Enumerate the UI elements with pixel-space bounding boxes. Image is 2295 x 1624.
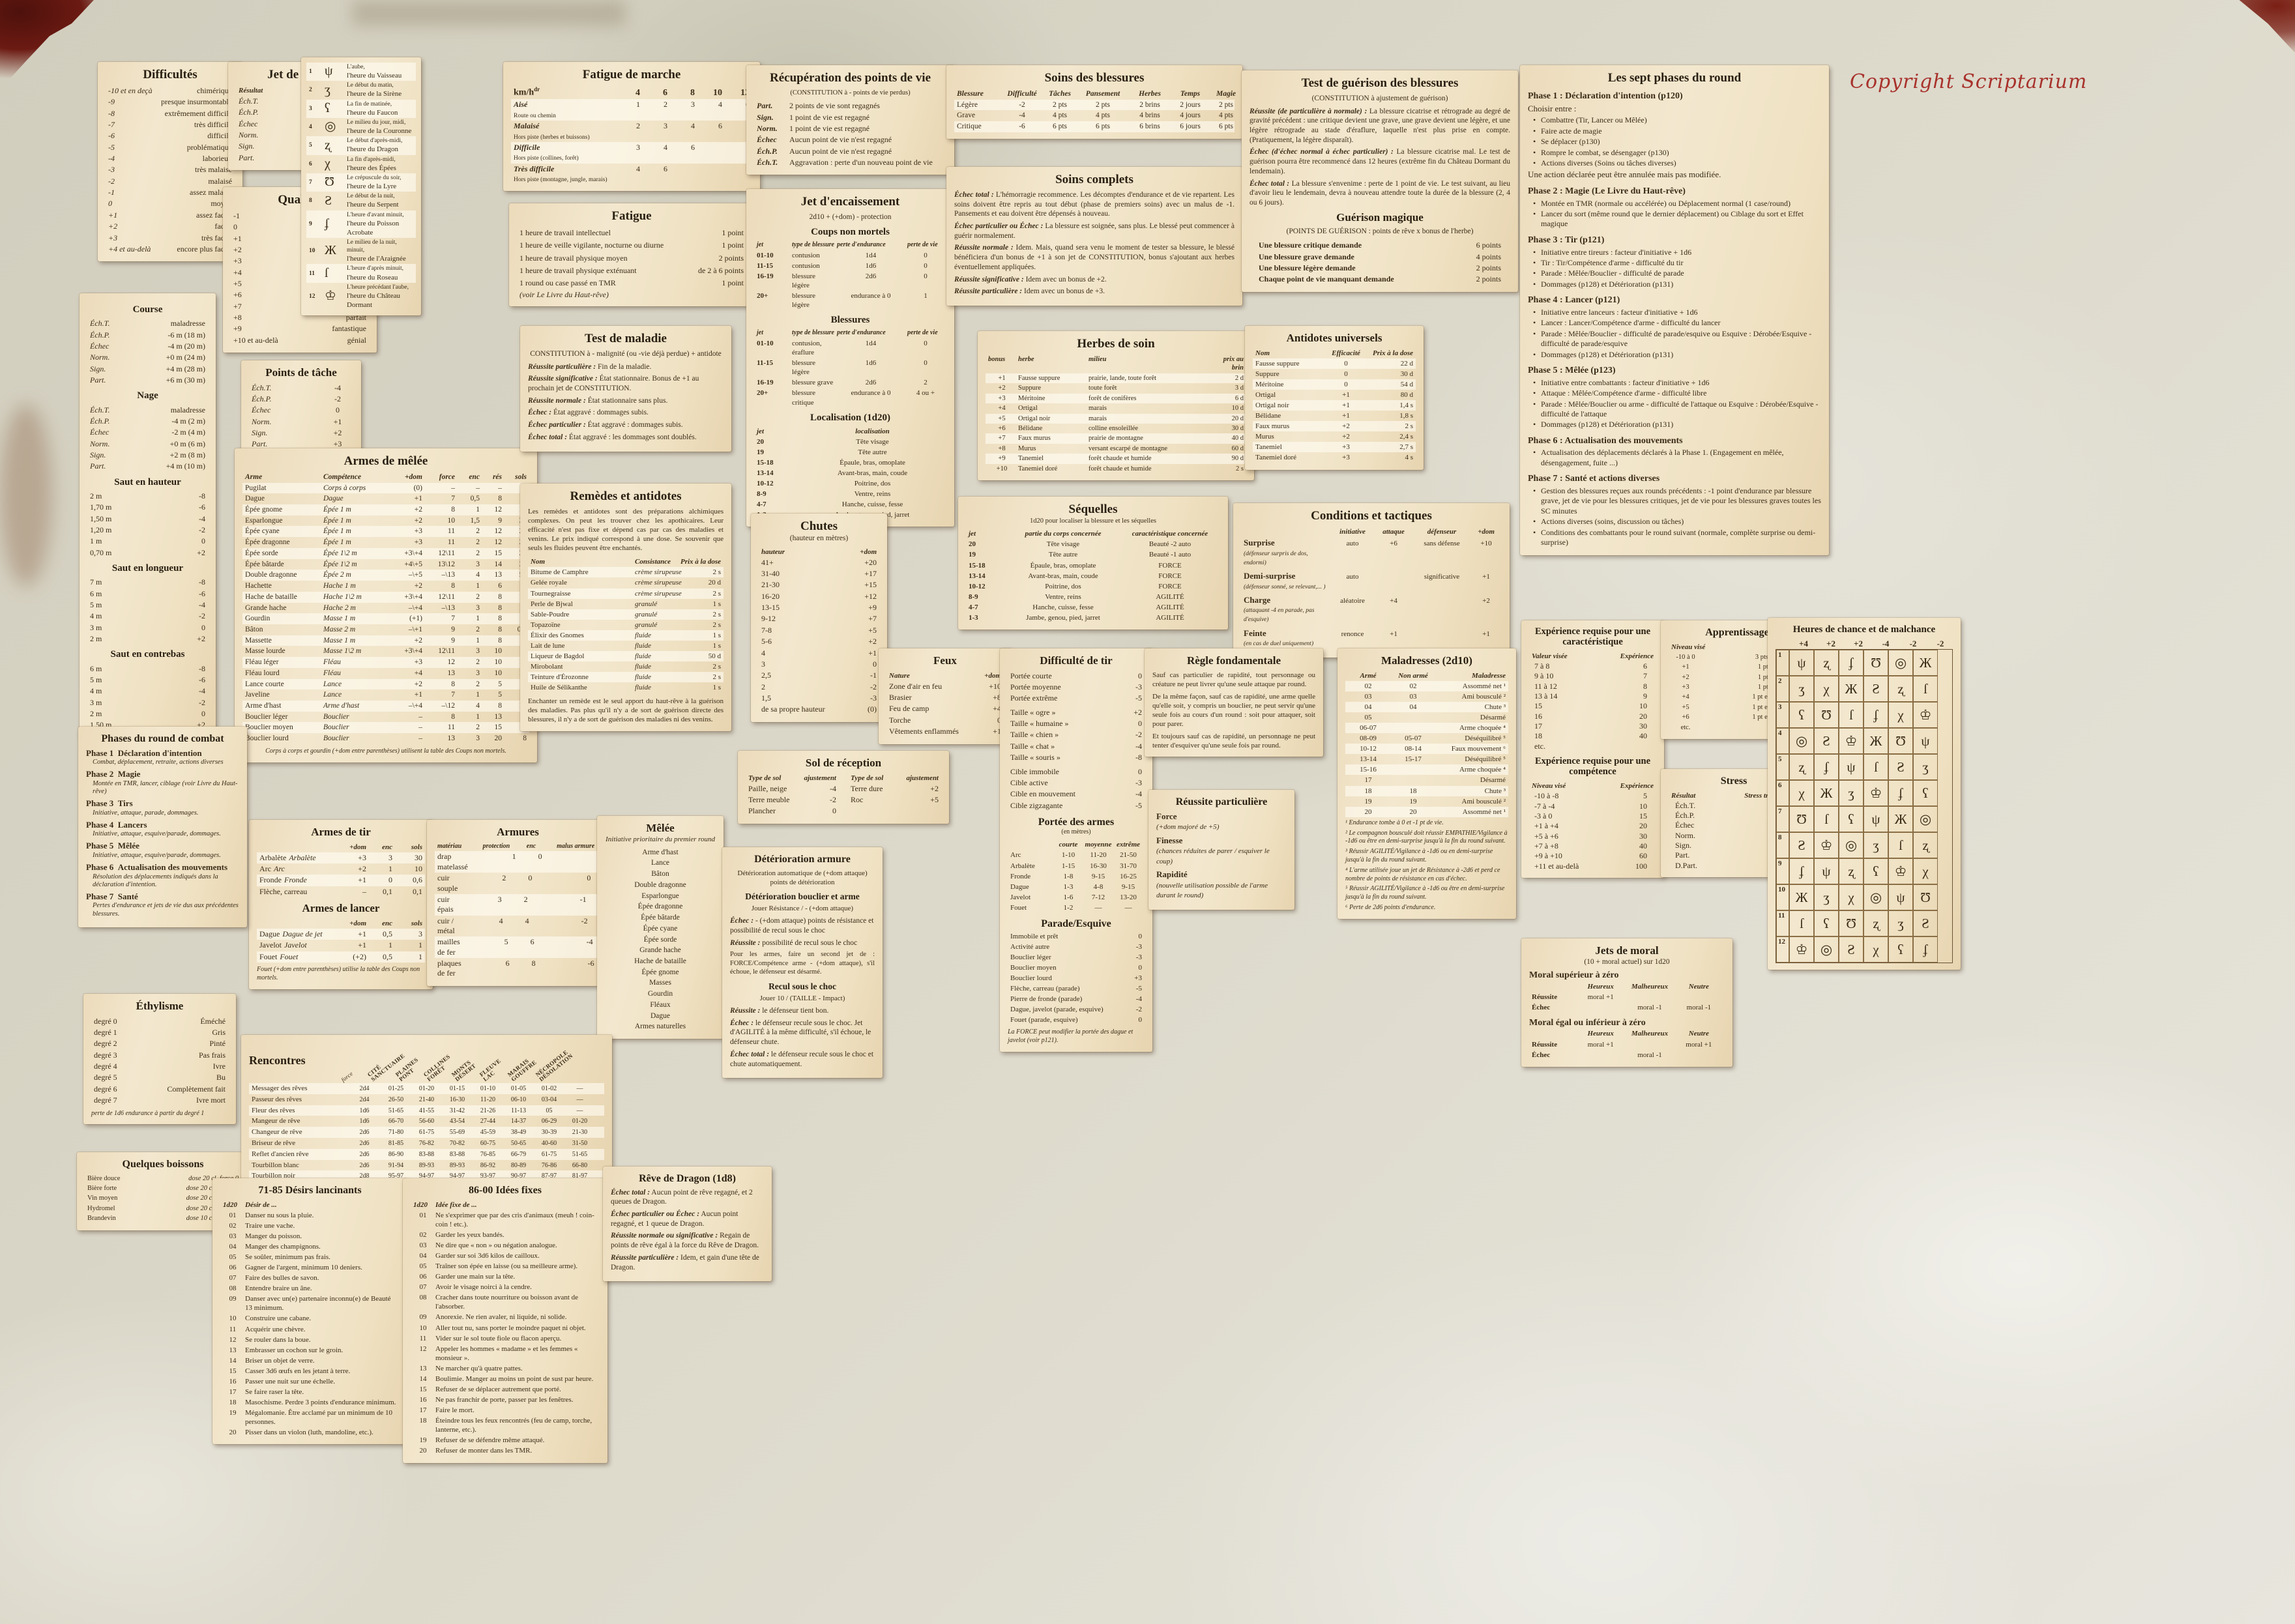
col-header: jet — [757, 427, 798, 436]
hour-sigil-icon: Ж — [325, 242, 344, 259]
weapon-dom: (0) — [388, 484, 422, 493]
initiative-order-list: Arme d'hastLanceBâtonDouble dragonneEspa… — [605, 847, 716, 1032]
card-desirs: 71-85 Désirs lancinants 1d20 Désir de ..… — [212, 1178, 407, 1444]
row-key: Norm. — [90, 439, 110, 449]
weapon-row: Grande hache Hache 2 m –\+4 –\13 3 8 15 — [242, 603, 529, 614]
remedy-price: 1 s — [697, 631, 721, 640]
col-header: localisation — [801, 427, 944, 436]
armor-malus: -6 — [538, 959, 594, 968]
armor-material: cuir épais — [437, 895, 454, 915]
card-subtitle: (CONSTITUTION à ajustement de guérison) — [1250, 94, 1510, 104]
result-label: Réussite particulière : — [611, 1254, 679, 1262]
row-key: -9 — [108, 97, 115, 107]
row-value: 0 — [201, 709, 205, 719]
range-monts: 45-59 — [474, 1129, 502, 1137]
defender: significative — [1413, 572, 1470, 581]
fumble-row: 10-12 08-14 Faux mouvement ⁶ — [1345, 744, 1508, 754]
fatigue-value: 1 — [615, 100, 640, 109]
weapon-skill: Fléau — [323, 669, 386, 678]
row-value: -5 — [1136, 984, 1142, 993]
endurance-loss: 1d4 — [837, 251, 905, 260]
table-row: Terre meuble-2 — [746, 794, 839, 805]
weapon-enc: 0,5 — [369, 929, 392, 939]
range-difficulty: Portée courte0Portée moyenne-3Portée ext… — [1008, 671, 1145, 704]
result-entry: Échec particulier ou Échec : La blessure… — [954, 222, 1235, 240]
hour-name: l'heure de la Sirène — [347, 90, 402, 98]
weapon-force: 9 — [425, 636, 455, 646]
card-title: Antidotes universels — [1253, 332, 1416, 345]
march-fatigue-table: AiséRoute ou chemin 1 2 3 4 6 MalaiséHor… — [511, 99, 752, 184]
weapon-name: Bouclier moyen — [245, 723, 321, 732]
section-title: Coups non mortels — [754, 226, 946, 239]
col-header: +dom — [1473, 527, 1499, 536]
body-part: Poitrine, dos — [801, 479, 944, 488]
fall-height: 21-30 — [761, 580, 780, 590]
antidote-price: 22 d — [1367, 359, 1413, 368]
armed-roll: 18 — [1348, 787, 1388, 796]
section-title: Parade/Esquive — [1008, 918, 1145, 930]
armor-enc: 8 — [512, 959, 536, 968]
table-row: 4-7 Hanche, cuisse, fesse — [754, 499, 946, 510]
phase-number: Phase 4 — [86, 820, 113, 830]
desire-text: Danser avec un(e) partenaire inconnu(e) … — [245, 1294, 397, 1312]
encounter-force: 2d6 — [349, 1151, 379, 1159]
card-title: Maladresses (2d10) — [1345, 655, 1508, 667]
obsession-text: Garder sur soi 3d6 kilos de cailloux. — [435, 1251, 597, 1260]
weapon-force: 13 — [425, 734, 455, 744]
armor-enc: 0 — [508, 873, 532, 883]
row-key: 1,20 m — [90, 525, 111, 535]
bullet-item: Initiative entre lanceurs : facteur d'in… — [1533, 308, 1821, 317]
herb-name: Suppure — [1018, 384, 1086, 392]
desire-text: Masochisme. Perdre 3 points d'endurance … — [245, 1398, 397, 1407]
hour-sigil-icon: ♔ — [325, 288, 344, 305]
terrain-row: AiséRoute ou chemin 1 2 3 4 6 — [511, 99, 752, 121]
hour-sigil-icon: ʐ — [1839, 858, 1864, 884]
result-label: Échec : — [730, 917, 753, 925]
section-title: Expérience requise pour une compétence — [1529, 757, 1656, 777]
col-header: Armé — [1348, 671, 1388, 680]
col-header: Idée fixe de ... — [435, 1200, 597, 1210]
footnote: ³ Réussir AGILITÉ/Vigilance à -1d6 ou en… — [1345, 848, 1508, 865]
table-row: Plancher0 — [746, 805, 839, 817]
phase-bullets: Montée en TMR (normale ou accélérée) ou … — [1533, 199, 1821, 229]
col-header: force — [425, 472, 455, 482]
table-header: Heureux Malheureux Neutre — [1529, 981, 1725, 992]
table-row: Une blessure critique demande6 points — [1250, 240, 1510, 251]
phase-line: Phase 3 Tirs — [86, 798, 239, 809]
weapon-enc: 2 — [458, 658, 480, 667]
row-value: +0 m (6 m) — [170, 439, 205, 449]
remedy-row: Perle de Bjwal granulé 1 s — [528, 599, 724, 609]
bullet-item: Lancer : Lancer/Compétence d'arme - diff… — [1533, 318, 1821, 328]
herb-row: +9 Tanemiel forêt chaude et humide 90 d — [986, 454, 1246, 463]
weapon-enc: 3 — [458, 669, 480, 678]
encounter-row: Changeur de rêve 2d6 71-80 61-75 55-69 4… — [249, 1127, 604, 1138]
result: Éch.T. — [1675, 801, 1695, 811]
herb-price: 20 d — [1211, 414, 1244, 423]
fumble-row: 08-09 05-07 Déséquilibré ⁵ — [1345, 733, 1508, 744]
antidote-efficacy: 0 — [1327, 370, 1365, 379]
weapon-dom: –\+4 — [388, 701, 422, 711]
remedy-consistency: granulé — [635, 610, 695, 619]
desire-text: Passer une nuit sur une échelle. — [245, 1377, 397, 1386]
desire-text: Briser un objet de verre. — [245, 1356, 397, 1365]
weapon-row: Esparlongue Épée 1 m +2 10 1,5 9 20 — [242, 515, 529, 527]
row-key: Pierre de fronde (parade) — [1010, 994, 1082, 1004]
encounter-name: Changeur de rêve — [252, 1127, 347, 1137]
row-key: Échec — [757, 135, 787, 145]
row-key: Taille « souris » — [1010, 753, 1060, 762]
weapon-dom: (+1) — [388, 614, 422, 624]
intro-text: Les remèdes et antidotes sont des prépar… — [528, 507, 724, 553]
range-marais: 76-86 — [535, 1162, 563, 1170]
weapon-name: Pugilat — [245, 484, 321, 493]
section-subtitle: (en mètres) — [1008, 828, 1145, 837]
xp-cost: 8 — [1643, 682, 1647, 691]
hour-sigil-icon: χ — [1839, 884, 1864, 910]
range-necropole: 31-50 — [566, 1140, 594, 1148]
table-row: Sign.+2 — [249, 428, 353, 439]
hour-name: l'heure du Faucon — [347, 109, 398, 117]
armed-roll: 20 — [1348, 807, 1388, 817]
target-value: 18 — [1534, 731, 1542, 741]
weapon-res: 8 — [482, 603, 502, 613]
table-row: 2,5-1 — [759, 670, 879, 681]
table-row: 19 Tête autre Beauté -1 auto — [966, 549, 1220, 560]
weapon-enc: 3 — [458, 603, 480, 613]
col-header: Maladresse — [1438, 671, 1506, 680]
phase-entry: Phase 7 Santé Pertes d'endurance et jets… — [86, 892, 239, 918]
weapon-skill: Masse 1 m — [323, 636, 386, 646]
herb-name: Tanemiel — [1018, 454, 1086, 463]
card-title: Sol de réception — [746, 757, 941, 770]
xp-cost: 9 — [1643, 691, 1647, 701]
hour-name: l'heure du Château Dormant — [347, 292, 400, 309]
desire-text: Mégalomanie. Être acclamé par un minimum… — [245, 1408, 397, 1427]
card-points-tache: Points de tâche Éch.T.-4Éch.P.-2Échec0No… — [241, 360, 361, 457]
range-monts: 76-85 — [474, 1151, 502, 1159]
fumble-row: 05 Désarmé — [1345, 712, 1508, 723]
rule-paragraph: De la même façon, sauf cas de rapidité, … — [1152, 692, 1315, 729]
row-key: Taille « ogre » — [1010, 708, 1055, 718]
footnote: ⁴ L'arme utilisée joue un jet de Résista… — [1345, 867, 1508, 884]
col-header: moyenne — [1085, 840, 1112, 849]
result-text: État stationnaire sans plus. — [588, 397, 668, 405]
herb-row: +1 Fausse suppure prairie, lande, toute … — [986, 373, 1246, 383]
phase-line: Phase 6 Actualisation des mouvements — [86, 862, 239, 873]
fall-dom: (0) — [868, 704, 877, 714]
fatigue-value: 6 — [697, 121, 722, 131]
table-row: 31-40+17 — [759, 568, 879, 579]
row-value: +2 — [197, 634, 205, 644]
fall-height: 16-20 — [761, 592, 780, 602]
card-title: Points de tâche — [249, 367, 353, 379]
row-key: Cible en mouvement — [1010, 789, 1075, 799]
ground-type: Roc — [851, 795, 863, 805]
success-entry: Finesse(chances réduites de parer / esqu… — [1156, 835, 1287, 866]
phase-desc: Initiative, attaque, parade, dommages. — [93, 809, 239, 817]
thrown-weapons-table: Dague Dague de jet +1 0,5 3 Javelot Jave… — [257, 929, 425, 963]
obsession-text: Garder les yeux bandés. — [435, 1230, 597, 1240]
card-title: Armes de mêlée — [242, 455, 529, 469]
bullet-item: Rompre le combat, se désengager (p130) — [1533, 148, 1821, 158]
phase-number: Phase 7 — [86, 892, 113, 901]
section-subtitle: Jouer Résistance / - (+dom attaque) — [730, 904, 875, 913]
hour-sigil-icon: ʕ — [1839, 806, 1864, 832]
state: Ivre — [213, 1062, 226, 1071]
body-part: Poitrine, dos — [1006, 582, 1120, 591]
weapon-enc: 1 — [458, 712, 480, 722]
range-extreme: 13-20 — [1115, 893, 1142, 902]
degree: degré 5 — [94, 1073, 117, 1082]
phase-heading: Phase 5 : Mêlée (p123) — [1528, 365, 1821, 377]
hour-sigil-icon: Ƨ — [1888, 754, 1913, 780]
phase-number: Phase 1 — [86, 748, 113, 758]
weapon-row: Arc Arc +2 1 10 — [257, 863, 425, 875]
herb-bonus: +5 — [988, 414, 1016, 423]
table-row: 13-15+9 — [759, 602, 879, 613]
weapon-name: Dague — [1010, 882, 1052, 892]
row-key: Éch.T. — [90, 405, 110, 415]
result-label: Réussite normale : — [954, 244, 1014, 252]
roll: 19 — [223, 1408, 242, 1417]
phase-desc: Pertes d'endurance et jets de vie dus au… — [93, 902, 239, 918]
table-row: Part.+6 m (30 m) — [87, 375, 208, 386]
hour-row: 5 ʐ Le début d'après-midi,l'heure du Dra… — [306, 136, 416, 154]
table-row: -10 à -85 — [1529, 791, 1656, 801]
encounter-name: Mangeur de rêve — [252, 1116, 347, 1125]
terrain-desc: Hors piste (herbes et buissons) — [514, 134, 590, 141]
hour-label: La fin d'après-midi,l'heure des Épées — [347, 156, 413, 173]
remedy-consistency: granulé — [635, 600, 695, 609]
antidote-name: Fausse suppure — [1255, 359, 1324, 368]
obsession-text: Anorexie. Ne rien avaler, ni liquide, ni… — [435, 1312, 597, 1322]
healing-test-results: Réussite (de particulière à normale) : L… — [1250, 107, 1510, 208]
localisation-table: 20 Tête visage 19 Tête autre 15-18 Épaul… — [754, 437, 946, 521]
ground-adjust: -2 — [830, 795, 836, 805]
table-header: bonus herbe milieu prix au brin — [986, 355, 1246, 373]
hour-row: 10 Ж Le milieu de la nuit, minuit,l'heur… — [306, 238, 416, 264]
card-sol-reception: Sol de réception Type de solajustement P… — [738, 751, 949, 824]
table-row: 1 heure de veille vigilante, nocturne ou… — [517, 239, 746, 252]
target-level: +2 — [1671, 673, 1700, 682]
phase-line: Phase 7 Santé — [86, 892, 239, 903]
row-key: 0 — [108, 199, 112, 209]
list-item: Dague — [605, 1011, 716, 1022]
weapon-force: 7 — [425, 690, 455, 700]
tactic-label: Charge(attaquant -4 en parade, pas d'esq… — [1244, 595, 1328, 624]
antidote-efficacy: +1 — [1327, 411, 1365, 420]
hour-sigil-icon: ſ — [1839, 702, 1864, 728]
table-row: 05Traîner son épée en laisse (ou sa meil… — [411, 1261, 600, 1271]
table-row: 2 m0 — [87, 708, 208, 719]
row-key: Flèche, carreau (parade) — [1010, 984, 1080, 993]
range-collines: 01-15 — [443, 1085, 471, 1094]
dragon-dream-results: Échec total : Aucun point de rêve regagn… — [611, 1188, 764, 1273]
hour-sigil-icon: ◎ — [1814, 936, 1839, 963]
roll: 09 — [223, 1294, 242, 1303]
armor-protection: 6 — [464, 959, 510, 968]
tactic-label: Demi-surprise(défenseur sonné, se releva… — [1244, 571, 1328, 591]
card-sept-phases: Les sept phases du round Phase 1 : Décla… — [1520, 65, 1829, 555]
row-value: -6 m (18 m) — [168, 330, 205, 340]
table-row: Norm.+1 — [249, 416, 353, 428]
hour-sigil-icon: Ж — [1789, 884, 1814, 910]
table-row: Critique -6 6 pts 6 pts 6 brins 6 jours … — [954, 121, 1235, 132]
card-subtitle: CONSTITUTION à - malignité (ou -vie déjà… — [528, 349, 724, 359]
row-key: Sign. — [90, 364, 106, 374]
table-row: 11Acquérir une chèvre. — [220, 1324, 400, 1335]
table-footnote: Corps à corps et gourdin (+dom entre par… — [242, 747, 529, 756]
target-level: +5 — [1671, 703, 1700, 712]
char-xp-table: 7 à 869 à 10711 à 12813 à 14915101620173… — [1529, 661, 1656, 751]
phase-desc: Résolution des déplacements indiqués dan… — [93, 873, 239, 889]
col-header: 4 — [615, 87, 640, 99]
table-row: 7-8+5 — [759, 625, 879, 636]
weapon-res: 8 — [482, 592, 502, 602]
herb-row: +7 Faux murus prairie de montagne 40 d — [986, 433, 1246, 443]
hour-sigil-icon: ʄ — [1888, 780, 1913, 806]
range-cite: 86-90 — [382, 1151, 410, 1159]
weapon-enc: 1 — [458, 614, 480, 624]
phase-heading: Phase 2 : Magie (Le Livre du Haut-rêve) — [1528, 186, 1821, 197]
size-difficulty: Taille « ogre »+2Taille « humaine »0Tail… — [1008, 707, 1145, 764]
table-row: Immobile et prêt0 — [1008, 931, 1145, 942]
weapon-name: Bâton — [245, 625, 321, 635]
row-value: maladresse — [171, 405, 205, 415]
result-label: Réussite : — [730, 939, 760, 947]
encounter-row: Tourbillon blanc 2d6 91-94 89-93 89-93 8… — [249, 1160, 604, 1171]
col-header: +2 — [1846, 639, 1871, 650]
range-fleuve: 38-49 — [504, 1129, 533, 1137]
weapon-skill: Javelot — [284, 940, 332, 950]
saut-hauteur-table: 2 m-81,70 m-61,50 m-41,20 m-21 m00,70 m+… — [87, 491, 208, 558]
weapon-force: 10 — [425, 516, 455, 526]
hour-sigil-icon: ʐ — [1864, 910, 1888, 936]
row-key: Taille « chat » — [1010, 742, 1055, 751]
col-header: 1d20 — [223, 1200, 242, 1210]
row-value: 2 points — [1476, 274, 1501, 284]
weapon-name: Fléau léger — [245, 658, 321, 667]
row-key: -4 — [108, 154, 115, 164]
hour-label: Le début de la nuit,l'heure du Serpent — [347, 192, 413, 209]
herb-bonus: +3 — [988, 394, 1016, 403]
row-key: -2 — [108, 177, 115, 186]
obsession-text: Ne dire que « non » ou négation analogue… — [435, 1241, 597, 1250]
rule-paragraph: Sauf cas particulier de rapidité, tout p… — [1152, 671, 1315, 689]
list-item: Hache de bataille — [605, 956, 716, 967]
fumble-effect: Assommé net ¹ — [1438, 682, 1506, 691]
row-key: Bouclier léger — [1010, 953, 1051, 962]
card-title: Test de guérison des blessures — [1250, 77, 1510, 91]
drunkenness-table: degré 0Éméchédegré 1Grisdegré 2Pintédegr… — [91, 1016, 228, 1107]
fumbles-table: 02 02 Assommé net ¹ 03 03 Ami bousculé ²… — [1345, 681, 1508, 817]
range-cite: 26-50 — [382, 1096, 410, 1105]
row-value: 1 point de vie est regagné — [789, 113, 944, 123]
roll: 02 — [413, 1230, 433, 1240]
desire-text: Se faire raser la tête. — [245, 1387, 397, 1397]
remedy-consistency: fluide — [635, 673, 695, 682]
remedy-consistency: crème sirupeuse — [635, 568, 695, 577]
fall-height: 1,5 — [761, 693, 771, 703]
antidote-row: Bélidane +1 1,8 s — [1253, 411, 1416, 421]
row-key: 4 m — [90, 686, 102, 696]
row-value: fantastique — [332, 324, 366, 334]
hour-number: 6 — [1776, 780, 1789, 806]
target-level: +4 — [1671, 693, 1700, 701]
characteristic: AGILITÉ — [1122, 613, 1218, 622]
characteristic: Beauté -1 auto — [1122, 550, 1218, 559]
row-value: -2 — [325, 394, 351, 404]
fumble-effect: Ami bousculé ² — [1438, 692, 1506, 701]
card-conditions: Conditions et tactiques initiative attaq… — [1233, 503, 1510, 658]
table-header: initiative attaque défenseur +dom — [1241, 527, 1502, 537]
hour-row: 9 ʄ L'heure d'avant minuit,l'heure du Po… — [306, 210, 416, 238]
roll-range: 13-14 — [757, 469, 798, 478]
phase-number: Phase 5 — [86, 841, 113, 850]
weapon-dom: – — [388, 712, 422, 722]
table-row: Réussite moral +1 moral +1 — [1529, 1039, 1725, 1050]
weapon-skill: Lance — [323, 690, 386, 700]
table-row: 06Gagner de l'argent, minimum 10 deniers… — [220, 1262, 400, 1273]
hour-sigil-icon: Ж — [1864, 728, 1888, 754]
body-part: Tête autre — [801, 448, 944, 457]
card-armes-melee: Armes de mêlée Arme Compétence +dom forc… — [235, 448, 537, 762]
weapon-skill: Arme d'hast — [323, 701, 386, 711]
result-text: Fin de la maladie. — [598, 363, 651, 371]
table-row: Portée moyenne-3 — [1008, 682, 1145, 693]
remedy-name: Élixir des Gnomes — [531, 631, 632, 640]
hour-name: l'heure de l'Araignée — [347, 255, 406, 263]
weapon-res: 12 — [482, 527, 502, 536]
armor-row: cuir souple 2 0 0 6 — [435, 873, 601, 894]
row-value: -8 — [199, 577, 205, 587]
row-value: +2 — [325, 428, 351, 438]
fall-height: 9-12 — [761, 614, 776, 624]
fumble-effect: Désarmé — [1438, 776, 1506, 785]
weapon-force: –\12 — [425, 701, 455, 711]
obsession-text: Refuser de se déplacer autrement que por… — [435, 1385, 597, 1394]
life-loss: 0 — [907, 272, 944, 281]
table-header: jet type de blessure perte d'endurance p… — [754, 240, 946, 250]
col-header: Malheureux — [1626, 1029, 1673, 1038]
hour-number: 1 — [309, 68, 322, 76]
morale-table-positive: Réussite moral +1 Échec moral -1 moral -… — [1529, 992, 1725, 1013]
fumble-effect: Faux mouvement ⁶ — [1438, 744, 1506, 753]
unit-label: km/hdr — [514, 86, 613, 99]
remedy-price: 2 s — [697, 589, 721, 598]
roll: 07 — [223, 1273, 242, 1283]
skill-xp-table: -10 à -85-7 à -410-3 à 015+1 à +420+5 à … — [1529, 791, 1656, 871]
result-text: L'hémorragie recommence. Les décomptes d… — [954, 191, 1235, 218]
range-extreme: 9-15 — [1115, 882, 1142, 892]
col-header: caractéristique concernée — [1122, 529, 1218, 538]
card-title: Fatigue de marche — [511, 68, 752, 82]
table-row: 1510 — [1529, 701, 1656, 711]
weapon-name: Hachette — [245, 581, 321, 591]
weapon-force: 7 — [425, 614, 455, 624]
roll: 05 — [223, 1253, 242, 1262]
target-value: 16 — [1534, 712, 1542, 721]
weapon-row: Bouclier moyen Bouclier – 11 2 15 6 — [242, 722, 529, 733]
row-value: +4 m (28 m) — [166, 364, 205, 374]
card-title: Rencontres — [249, 1054, 344, 1067]
armed-roll: 17 — [1348, 776, 1388, 785]
fall-height: 41+ — [761, 558, 774, 568]
row-key: Sign. — [239, 141, 254, 151]
weapon-res: 5 — [482, 680, 502, 689]
